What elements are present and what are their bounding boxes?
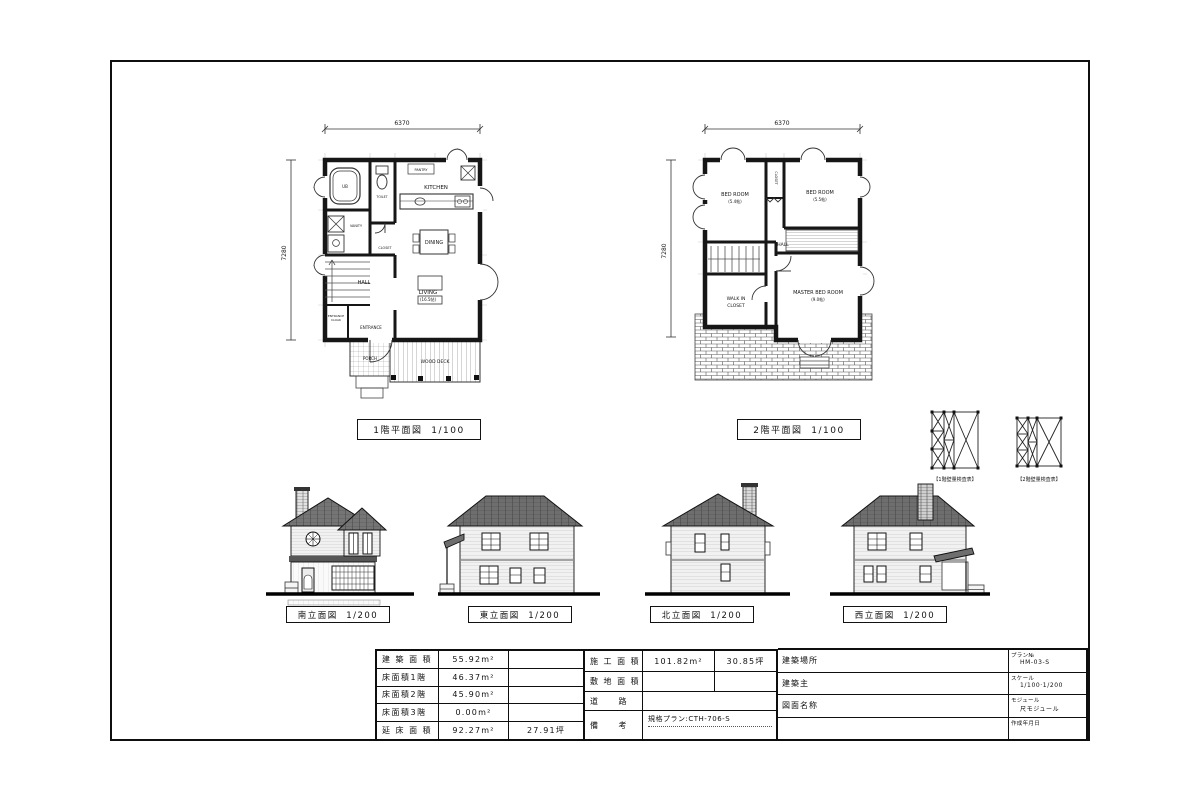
area-value-tsubo [509, 704, 583, 721]
area-label: 床面積1階 [377, 669, 439, 686]
elevation-west-caption-text: 西立面図 1/200 [855, 609, 935, 621]
elevation-north-caption-text: 北立面図 1/200 [662, 609, 742, 621]
table-row: 延 床 面 積 92.27m² 27.91坪 [377, 722, 583, 739]
dimension-top-value: 6370 [394, 120, 409, 127]
road-value [643, 692, 776, 710]
construction-tsubo: 30.85坪 [715, 651, 776, 671]
room-label: MASTER BED ROOM [793, 290, 843, 296]
area-label: 延 床 面 積 [377, 722, 439, 739]
room-label: WALK IN [727, 296, 746, 302]
room-label: (16.5帖) [420, 296, 436, 302]
area-value-sqm: 55.92m² [439, 651, 509, 668]
plan-no-row: プラン№ HM-03-S [1009, 650, 1086, 673]
site-area-sqm [643, 672, 715, 690]
elevation-south [258, 478, 423, 610]
table-row: 敷 地 面 積 [585, 672, 776, 691]
area-label: 建 築 面 積 [377, 651, 439, 668]
elevation-north-caption: 北立面図 1/200 [650, 606, 754, 623]
module-value: 尺モジュール [1011, 704, 1084, 713]
scale-value: 1/100·1/200 [1011, 682, 1084, 689]
dimension-left-value: 7280 [661, 243, 668, 258]
chimney [918, 484, 933, 520]
elevation-east-caption-text: 東立面図 1/200 [480, 609, 560, 621]
chimney-cap [741, 483, 758, 487]
elevation-west-caption: 西立面図 1/200 [843, 606, 947, 623]
lattice-window [332, 566, 374, 590]
building-owner-label: 建築主 [778, 673, 1008, 696]
first-floor-windows [721, 564, 730, 581]
site-area-label: 敷 地 面 積 [585, 672, 643, 690]
elevation-south-caption: 南立面図 1/200 [286, 606, 390, 623]
area-value-sqm: 92.27m² [439, 722, 509, 739]
plan1-caption: 1階平面図 1/100 [357, 419, 481, 440]
area-label: 床面積3階 [377, 704, 439, 721]
elevation-east [432, 478, 607, 610]
wall-diagram-2f-caption: 【2階壁量検査表】 [1017, 476, 1060, 483]
table-row: 床面積2階 45.90m² [377, 687, 583, 705]
room-label: BED ROOM [721, 192, 749, 198]
dimension-top-value: 6370 [774, 120, 789, 127]
floor-band [289, 556, 377, 562]
area-value-tsubo: 27.91坪 [509, 722, 583, 739]
area-value-sqm: 0.00m² [439, 704, 509, 721]
room-label: (5.5帖) [813, 196, 827, 202]
plan-no-value: HM-03-S [1011, 659, 1084, 666]
room-label: LIVING [419, 290, 437, 296]
floor-plan-2f: 6370 7280 [648, 106, 900, 418]
date-row: 作成年月日 [1009, 718, 1086, 740]
area-value-tsubo [509, 669, 583, 686]
plan-no-label: プラン№ [1011, 651, 1084, 659]
elevation-north [635, 478, 800, 610]
room-label: HALL [358, 280, 371, 286]
room-label: CLOSET [774, 171, 778, 185]
construction-sqm: 101.82m² [643, 651, 715, 671]
table-row: 備 考 規格プラン:CTH-706-S [585, 711, 776, 739]
area-value-tsubo [509, 687, 583, 704]
area-label: 床面積2階 [377, 687, 439, 704]
building-location-label: 建築場所 [778, 650, 1008, 673]
area-value-tsubo [509, 651, 583, 668]
room-label: VANITY [350, 224, 363, 228]
room-label: CLOSET [727, 303, 745, 309]
title-block: 建築場所 建築主 図面名称 プラン№ HM-03-S スケール 1/100·1/… [778, 648, 1088, 741]
title-block-left: 建築場所 建築主 図面名称 [778, 650, 1008, 739]
remarks-value: 規格プラン:CTH-706-S [643, 711, 776, 739]
room-label: PANTRY [415, 168, 429, 172]
round-window [306, 532, 320, 546]
front-door [302, 568, 314, 592]
balcony-strip [786, 230, 858, 251]
area-table: 建 築 面 積 55.92m² 床面積1階 46.37m² 床面積2階 45.9… [375, 649, 585, 741]
table-row: 施 工 面 積 101.82m² 30.85坪 [585, 651, 776, 672]
room-label: PORCH [363, 356, 377, 361]
room-label: WOOD DECK [421, 359, 451, 365]
road-label: 道 路 [585, 692, 643, 710]
roof [842, 496, 974, 526]
entry-steps [285, 582, 298, 594]
drawing-name-label: 図面名称 [778, 695, 1008, 718]
remarks-label: 備 考 [585, 711, 643, 739]
table-row: 床面積3階 0.00m² [377, 704, 583, 722]
remark-text: 規格プラン:CTH-706-S [648, 714, 772, 727]
roof [663, 494, 773, 526]
plan1-caption-text: 1階平面図 1/100 [373, 423, 464, 436]
room-label: CLOSET [378, 246, 392, 250]
table-row: 道 路 [585, 692, 776, 711]
site-area-tsubo [715, 672, 776, 690]
chimney-cap [294, 487, 310, 491]
scale-label: スケール [1011, 674, 1084, 682]
room-label: DINING [425, 240, 443, 246]
room-label: KITCHEN [424, 185, 448, 191]
roof [448, 496, 582, 526]
floor-plan-1f: 6370 7280 [268, 106, 520, 418]
area-value-sqm: 46.37m² [439, 669, 509, 686]
wall-diagram-2f [1016, 417, 1063, 468]
plan2-caption-text: 2階平面図 1/100 [753, 423, 844, 436]
room-label: (5.4帖) [728, 198, 742, 204]
room-label: ENTRANCE [360, 325, 382, 330]
construction-table: 施 工 面 積 101.82m² 30.85坪 敷 地 面 積 道 路 備 考 … [585, 649, 778, 741]
elevation-west [822, 478, 997, 610]
room-label: UB [342, 184, 348, 189]
drawing-sheet-border [110, 60, 1090, 741]
plan2-caption: 2階平面図 1/100 [737, 419, 861, 440]
date-label: 作成年月日 [1011, 719, 1084, 727]
room-label: BED ROOM [806, 190, 834, 196]
porch-steps [356, 376, 388, 398]
module-label: モジュール [1011, 696, 1084, 704]
wall-diagram-1f [931, 411, 980, 470]
room-label: HALL [777, 242, 789, 248]
elevation-south-caption-text: 南立面図 1/200 [298, 609, 378, 621]
title-block-meta: プラン№ HM-03-S スケール 1/100·1/200 モジュール 尺モジュ… [1008, 650, 1086, 739]
dimension-left-value: 7280 [281, 245, 288, 260]
table-row: 床面積1階 46.37m² [377, 669, 583, 687]
room-label: (9.0帖) [811, 296, 825, 302]
table-row: 建 築 面 積 55.92m² [377, 651, 583, 669]
bay-steps [800, 357, 829, 368]
blank-row [778, 718, 1008, 740]
fence-strip [288, 600, 380, 605]
first-floor-windows [480, 566, 545, 584]
construction-label: 施 工 面 積 [585, 651, 643, 671]
room-label: TOILET [375, 195, 387, 199]
module-row: モジュール 尺モジュール [1009, 695, 1086, 718]
area-value-sqm: 45.90m² [439, 687, 509, 704]
elevation-east-caption: 東立面図 1/200 [468, 606, 572, 623]
room-label: CLOAK [331, 318, 342, 322]
scale-row: スケール 1/100·1/200 [1009, 673, 1086, 696]
